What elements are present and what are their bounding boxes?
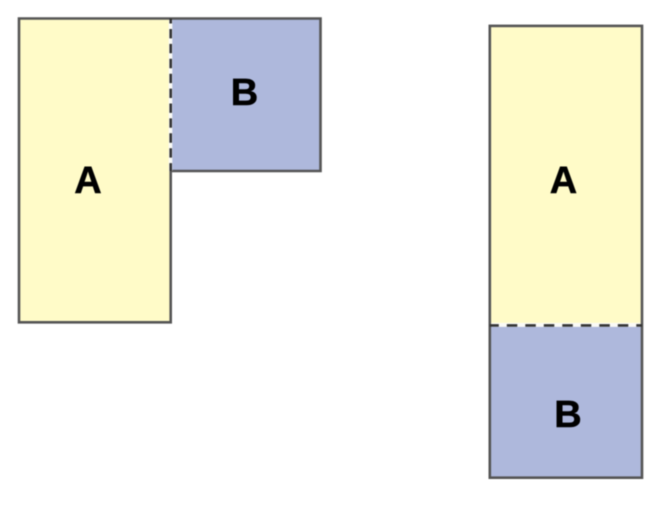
svg-text:B: B [554,394,581,436]
svg-text:A: A [550,160,577,202]
svg-text:B: B [231,72,258,114]
svg-text:A: A [74,160,101,202]
